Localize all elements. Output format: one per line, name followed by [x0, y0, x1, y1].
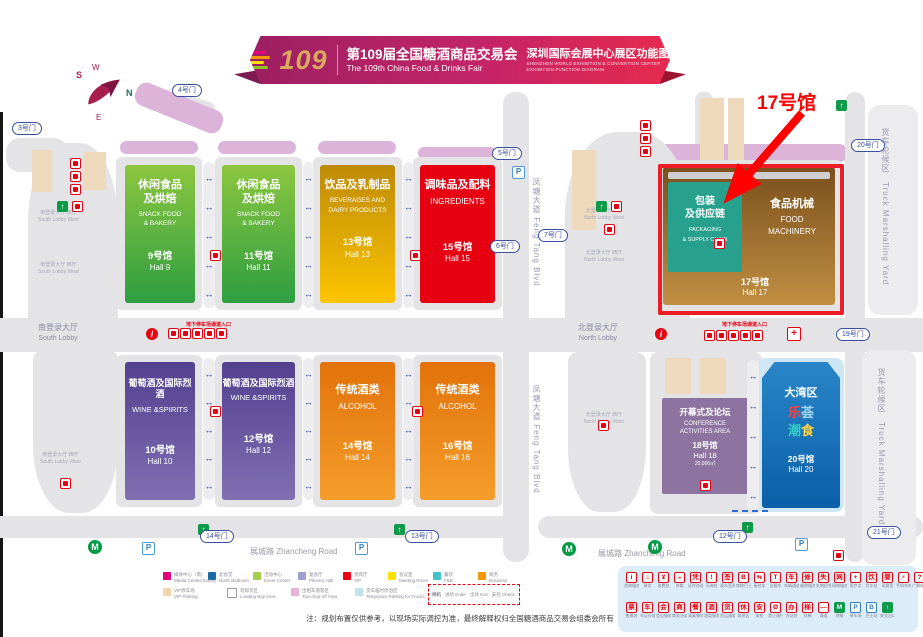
legend-icon-item: Ø禁止通行: [768, 602, 783, 619]
hall-title-en: WINE &SPIRITS: [132, 404, 188, 415]
legend-icon-label: 扶梯: [804, 613, 812, 619]
compass-s: S: [76, 70, 82, 80]
legend-icon-label: 地铁: [836, 613, 844, 619]
legend-icon-item: ♨餐饮: [640, 572, 655, 589]
building-block: [665, 358, 691, 394]
legend-icon-label: 餐饮: [644, 583, 652, 589]
legend-facility-icon: B: [866, 602, 877, 613]
legend-area-label: 货车临时停泊区Temporary Parking for Trucks: [366, 588, 425, 599]
legend-icon-item: 饮饮水处: [864, 572, 879, 589]
facility-icon: [410, 250, 421, 261]
facility-icon: [210, 406, 221, 417]
legend-area-item: 会议室Meeting Room: [388, 572, 428, 583]
legend-icon-label: 维修服务: [800, 583, 815, 589]
zhancheng-road-label: 展城路 Zhancheng Road: [598, 548, 686, 559]
hall-title-cn: 葡萄酒及国际烈酒: [125, 378, 195, 401]
hall-number: 11号馆: [244, 251, 273, 263]
legend-color-chip: [208, 572, 216, 580]
compass-icon: [83, 73, 124, 110]
two-way-arrow-icon: [205, 197, 214, 215]
hall-number: 18号馆: [693, 440, 718, 451]
zone-title-en: MACHINERY: [768, 227, 816, 236]
two-way-arrow-icon: [304, 392, 313, 410]
two-way-arrow-icon: [304, 476, 313, 494]
icon-legend-row-1: i咨询服务♨餐饮¥收费处☕茶歇凭证件办理!问询处签观众签到B穿梭巴士⇆接驳车T出…: [624, 572, 923, 589]
logo-char: 潮: [788, 423, 801, 438]
legend-icon-label: 茶歇: [676, 583, 684, 589]
hall-number: 15号馆: [443, 242, 473, 254]
legend-facility-icon: 车: [642, 602, 653, 613]
legend-facility-icon: 休: [738, 602, 749, 613]
truck-yard-north: [868, 105, 918, 315]
legend-area-label: VIP停车场VIP Parking: [174, 588, 198, 599]
hall-20: 大湾区 乐荟 潮食 20号馆 Hall 20: [762, 362, 840, 508]
south-lobby-west-label: 南登录大厅 西厅South Lobby West: [38, 262, 79, 275]
legend-facility-icon: 梯: [802, 602, 813, 613]
legend-icon-label: 办证处: [786, 613, 798, 619]
two-way-arrow-icon: [304, 364, 313, 382]
facility-icon: [180, 328, 191, 339]
banner-titles: 第109届全国糖酒商品交易会 The 109th China Food & Dr…: [347, 47, 518, 73]
hall-11: 休闲食品 及烘焙 SNACK FOOD& BAKERY 11号馆 Hall 11: [222, 165, 295, 303]
legend-facility-icon: 餐: [690, 602, 701, 613]
legend-icon-item: 凭证件办理: [688, 572, 703, 589]
gatebox-item: 进场 Enter: [445, 592, 466, 598]
fengtang-blvd-label: 凤塘大道 Feng Tang Blvd: [531, 178, 542, 313]
facility-icon: [70, 171, 81, 182]
facility-icon: [716, 330, 727, 341]
taxi-area-shape: [218, 141, 296, 154]
legend-icon-item: ?广播服务: [912, 572, 923, 589]
legend-icon-item: ⚡手机充电: [896, 572, 911, 589]
hall-name-en: Hall 18: [693, 451, 716, 460]
legend-icon-item: M地铁: [832, 602, 847, 619]
zone-title-cn: 食品机械: [755, 195, 829, 211]
hall-17-label: 17号馆 Hall 17: [725, 275, 785, 297]
legend-facility-icon: ♨: [642, 572, 653, 583]
exit-icon: ↑: [57, 201, 68, 212]
facility-icon: [72, 201, 83, 212]
legend-facility-icon: Ø: [770, 602, 781, 613]
legend-facility-icon: T: [770, 572, 781, 583]
hall-title-en: SNACK FOOD& BAKERY: [139, 210, 182, 230]
two-way-arrow-icon: [205, 476, 214, 494]
facility-icon: [640, 133, 651, 144]
compass-e: E: [96, 113, 101, 122]
hall-name-en: Hall 14: [345, 453, 370, 463]
legend-icon-label: 安全出口: [880, 613, 895, 619]
metro-station-icon: M: [648, 540, 662, 554]
legend-icon-label: 手机充电: [896, 583, 911, 589]
disclaimer-note: 注：规划布置仅供参考，以现场实际调控为准，最终解释权归全国糖酒商品交易会组委会所…: [180, 613, 740, 624]
legend-icon-item: i咨询服务: [624, 572, 639, 589]
hall-number: 13号馆: [343, 237, 373, 249]
hall-18: 开幕式及论坛 CONFERENCE ACTIVITIES AREA 18号馆 H…: [662, 398, 748, 494]
building-block: [700, 98, 724, 164]
underground-parking-label: 地下停车场通道入口: [186, 321, 231, 328]
underground-parking-label: 地下停车场通道入口: [722, 321, 767, 328]
two-way-arrow-icon: [304, 420, 313, 438]
legend-facility-icon: ⚡: [898, 572, 909, 583]
legend-icon-item: B巴士站: [864, 602, 879, 619]
two-way-arrow-icon: [749, 456, 758, 474]
gate-7: 7号门: [538, 229, 568, 242]
facility-icon: [704, 330, 715, 341]
hall-title-en: SNACK FOOD& BAKERY: [237, 210, 280, 230]
legend-facility-icon: ¥: [658, 572, 669, 583]
legend-icon-label: 安检: [756, 613, 764, 619]
two-way-arrow-icon: [404, 284, 413, 302]
legend-facility-icon: 婴: [882, 572, 893, 583]
legend-icon-label: 医疗点: [850, 583, 862, 589]
hall-title-en: BEVERAGES ANDDAIRY PRODUCTS: [329, 196, 387, 216]
legend-facility-icon: 车: [786, 572, 797, 583]
legend-facility-icon: —: [818, 602, 829, 613]
hall-name-en: Hall 15: [445, 254, 470, 264]
two-way-arrow-icon: [205, 448, 214, 466]
building-block: [32, 150, 52, 192]
banner-title-en: The 109th China Food & Drinks Fair: [347, 63, 518, 73]
banner-subtitles: 深圳国际会展中心展区功能图 SHENZHEN WORLD EXHIBITION …: [527, 48, 670, 72]
compass-w: W: [92, 63, 100, 72]
hall-13: 饮品及乳制品 BEVERAGES ANDDAIRY PRODUCTS 13号馆 …: [320, 165, 395, 303]
corridor-arrows: [203, 162, 215, 308]
two-way-arrow-icon: [304, 284, 313, 302]
north-lobby-label: 北登录大厅North Lobby: [578, 323, 618, 344]
legend-icon-label: 问询处: [706, 583, 718, 589]
facility-icon: [611, 201, 622, 212]
zone-title-en: PACKAGING: [689, 227, 721, 233]
two-way-arrow-icon: [304, 226, 313, 244]
facility-icon: [604, 224, 615, 235]
legend-icon-item: 网网络服务: [832, 572, 847, 589]
legend-facility-icon: ?: [914, 572, 923, 583]
legend-facility-icon: ⇆: [754, 572, 765, 583]
banner-subtitle-en: EXHIBITION FUNCTION DIAGRAM: [527, 67, 670, 73]
logo-char: 荟: [801, 405, 814, 420]
legend-area-label: 会议室Meeting Room: [399, 572, 428, 583]
taxi-area-shape: [120, 141, 198, 154]
legend-icon-item: —通道: [816, 602, 831, 619]
south-lobby-label: 南登录大厅South Lobby: [38, 323, 78, 344]
zhancheng-road-label: 展城路 Zhancheng Road: [250, 546, 338, 557]
hall-number: 20号馆: [788, 453, 814, 465]
facility-icon: [640, 120, 651, 131]
legend-facility-icon: 饮: [866, 572, 877, 583]
legend-icon-item: 办办证处: [784, 602, 799, 619]
legend-icon-label: 失物招领: [816, 583, 831, 589]
legend-facility-icon: M: [834, 602, 845, 613]
legend-area-label: 贵宾厅VIP: [354, 572, 368, 583]
legend-facility-icon: 商: [674, 602, 685, 613]
legend-icon-label: 禁止通行: [768, 613, 783, 619]
gate-20: 20号门: [851, 139, 885, 152]
legend-area-item: 北会堂North Ballroom: [208, 572, 249, 583]
legend-color-chip: [388, 572, 396, 580]
two-way-arrow-icon: [304, 197, 313, 215]
corridor-arrows: [303, 162, 314, 308]
legend-icon-item: 签观众签到: [720, 572, 735, 589]
facility-icon: [60, 478, 71, 489]
legend-icon-item: 婴母婴室: [880, 572, 895, 589]
legend-facility-icon: +: [850, 572, 861, 583]
legend-icon-item: ⇆接驳车: [752, 572, 767, 589]
legend-facility-icon: 网: [834, 572, 845, 583]
image-edge: [0, 112, 3, 637]
facility-icon: [752, 330, 763, 341]
facility-icon: [168, 328, 179, 339]
legend-area-label: 出租车落客区Taxi drop-off Area: [302, 588, 337, 599]
legend-color-chip: [478, 572, 486, 580]
two-way-arrow-icon: [205, 420, 214, 438]
facility-icon: [216, 328, 227, 339]
legend-area-label: 北会堂North Ballroom: [219, 572, 249, 583]
hall-title-en: CONFERENCE: [684, 421, 726, 427]
legend-icon-label: 穿梭巴士: [736, 583, 751, 589]
gate-3: 3号门: [12, 122, 42, 135]
logo-char: 乐: [788, 405, 801, 420]
facility-icon: [728, 330, 739, 341]
gate-4: 4号门: [172, 84, 202, 97]
legend-facility-icon: 安: [754, 602, 765, 613]
legend-icon-item: !问询处: [704, 572, 719, 589]
north-lobby-west-label: 北登录大厅 西厅North Lobby West: [584, 250, 624, 263]
facility-icon: [833, 550, 844, 561]
hall-title-en: WINE &SPIRITS: [231, 392, 287, 403]
two-way-arrow-icon: [205, 226, 214, 244]
gate-5: 5号门: [492, 147, 522, 160]
legend-area-item: 货车临时停泊区Temporary Parking for Trucks: [355, 588, 425, 599]
two-way-arrow-icon: [205, 168, 214, 186]
banner-title-cn: 第109届全国糖酒商品交易会: [347, 47, 518, 63]
legend-area-label: 活动中心Event Center: [264, 572, 290, 583]
legend-area-item: 活动中心Event Center: [253, 572, 290, 583]
legend-icon-label: 停车场: [850, 613, 862, 619]
legend-area-item: 出租车落客区Taxi drop-off Area: [291, 588, 337, 599]
legend-area-item: VIP停车场VIP Parking: [163, 588, 198, 599]
legend-color-chip: [355, 588, 363, 596]
gatebox-item: 出场 Exit: [470, 592, 488, 598]
legend-icon-label: 观众签到: [720, 583, 735, 589]
logo-char: 食: [801, 423, 814, 438]
hall-area: 20,000㎡: [695, 460, 715, 467]
two-way-arrow-icon: [404, 226, 413, 244]
legend-color-chip: [343, 572, 351, 580]
hall-16: 传统酒类 ALCOHOL 16号馆 Hall 16: [420, 362, 495, 500]
corridor-arrows: [747, 360, 759, 510]
two-way-arrow-icon: [749, 486, 758, 504]
legend-icon-item: T出租车: [768, 572, 783, 589]
legend-icon-item: 安安检: [752, 602, 767, 619]
hall-number: 12号馆: [244, 434, 274, 446]
central-road: [0, 318, 923, 352]
hall-title-cn: 大湾区: [785, 384, 818, 400]
legend-icon-item: P停车场: [848, 602, 863, 619]
hall-number: 10号馆: [145, 445, 175, 457]
legend-color-chip: [163, 588, 171, 596]
corridor-arrows: [303, 358, 314, 500]
hall-10: 葡萄酒及国际烈酒 WINE &SPIRITS 10号馆 Hall 10: [125, 362, 195, 500]
legend-area-item: 宴会厅Plenary Hall: [298, 572, 333, 583]
legend-icon-label: 母婴室: [882, 583, 894, 589]
dashed-path: [732, 510, 768, 512]
zone-title-cn: 及供应链: [685, 209, 725, 220]
two-way-arrow-icon: [304, 168, 313, 186]
legend-area-label: 商务Business: [489, 572, 507, 583]
legend-icon-label: 证件办理: [688, 583, 703, 589]
gate-12: 12号门: [713, 530, 747, 543]
legend-icon-item: +医疗点: [848, 572, 863, 589]
gatebox-item: 安检 Check: [492, 592, 515, 598]
building-block: [700, 358, 726, 394]
legend-facility-icon: 修: [802, 572, 813, 583]
parking-icon: P: [355, 542, 368, 555]
legend-facility-icon: 酒: [706, 602, 717, 613]
metro-station-icon: M: [562, 542, 576, 556]
event-banner: 109 第109届全国糖酒商品交易会 The 109th China Food …: [250, 36, 670, 84]
building-block: [728, 98, 744, 164]
facility-icon: [740, 330, 751, 341]
legend-icon-label: 广播服务: [912, 583, 923, 589]
legend-facility-icon: 签: [722, 572, 733, 583]
legend-area-item: 餐饮F&B: [433, 572, 453, 583]
legend-facility-icon: 票: [626, 602, 637, 613]
gate-13: 13号门: [405, 530, 439, 543]
exhibition-map: { "banner": { "logo_number": "109", "tit…: [0, 0, 923, 637]
hall-name-en: Hall 13: [345, 250, 370, 260]
hall-17-packaging-zone: 包装 及供应链 PACKAGING & SUPPLY CHAIN: [668, 182, 742, 272]
corridor-arrows: [403, 162, 414, 308]
legend-facility-icon: 货: [722, 602, 733, 613]
facility-icon: [598, 420, 609, 431]
legend-facility-icon: B: [738, 572, 749, 583]
hall-number: 16号馆: [443, 441, 473, 453]
gate-machine-legend: 闸机进场 Enter出场 Exit安检 Check: [428, 584, 520, 605]
south-lobby-building-lower: [33, 350, 118, 513]
legend-facility-icon: 办: [786, 602, 797, 613]
first-aid-icon: +: [787, 327, 801, 341]
two-way-arrow-icon: [404, 420, 413, 438]
hall-17: 包装 及供应链 PACKAGING & SUPPLY CHAIN 食品机械 FO…: [663, 167, 835, 305]
legend-icon-label: 饮水处: [866, 583, 878, 589]
legend-area-label: 装卸货区Loading Bay Area: [240, 588, 276, 599]
two-way-arrow-icon: [404, 197, 413, 215]
hall-title-cn: 饮品及乳制品: [325, 179, 391, 193]
facility-icon: [192, 328, 203, 339]
south-lobby-west-label: 南登录大厅 西厅South Lobby West: [40, 452, 81, 465]
hall-title-cn: 葡萄酒及国际烈酒: [222, 378, 294, 389]
hall-name-en: Hall 17: [725, 288, 785, 297]
two-way-arrow-icon: [749, 396, 758, 414]
zone-title-cn: 包装: [695, 196, 715, 207]
hall-name-en: Hall 10: [148, 457, 173, 467]
legend-icon-item: 梯扶梯: [800, 602, 815, 619]
taxi-area-shape: [318, 141, 396, 154]
legend-color-chip: [291, 588, 299, 596]
hall-title-cn: 传统酒类: [436, 384, 480, 398]
corridor-arrows: [203, 358, 215, 500]
hall-title-cn: 休闲食品 及烘焙: [138, 179, 182, 207]
hall-name-en: Hall 12: [246, 446, 271, 456]
compass-n: N: [126, 88, 133, 98]
parking-icon: P: [142, 542, 155, 555]
hall-number: 17号馆: [725, 275, 785, 288]
hall-title-en: INGREDIENTS: [430, 196, 485, 208]
facility-icon: [210, 250, 221, 261]
facility-icon: [640, 146, 651, 157]
divider: [337, 45, 338, 75]
information-icon: i: [655, 328, 667, 340]
hall-name-en: Hall 20: [789, 465, 814, 474]
legend-facility-icon: 凭: [690, 572, 701, 583]
hall-14: 传统酒类 ALCOHOL 14号馆 Hall 14: [320, 362, 395, 500]
two-way-arrow-icon: [304, 448, 313, 466]
legend-facility-icon: !: [706, 572, 717, 583]
parking-icon: P: [795, 538, 808, 551]
legend-icon-item: 失失物招领: [816, 572, 831, 589]
legend-area-label: 宴会厅Plenary Hall: [309, 572, 333, 583]
legend-facility-icon: 会: [658, 602, 669, 613]
information-icon: i: [146, 328, 158, 340]
legend-area-item: 装卸货区Loading Bay Area: [227, 588, 276, 599]
facility-icon: [412, 406, 423, 417]
exit-icon: ↑: [836, 100, 847, 111]
two-way-arrow-icon: [749, 426, 758, 444]
legend-icon-label: 接驳车: [754, 583, 766, 589]
legend-icon-label: 巴士站: [866, 613, 878, 619]
fengtang-blvd-label: 凤塘大道 Feng Tang Blvd: [531, 385, 542, 505]
north-lobby-building-lower: [568, 352, 646, 512]
legend-icon-label: 车辆通道: [784, 583, 799, 589]
legend-icon-label: 通道: [820, 613, 828, 619]
legend-color-chip: [227, 588, 237, 598]
two-way-arrow-icon: [749, 366, 758, 384]
facility-icon: [714, 238, 725, 249]
two-way-arrow-icon: [404, 476, 413, 494]
loading-dock-strip: [668, 172, 830, 179]
two-way-arrow-icon: [205, 364, 214, 382]
legend-area-item: 商务Business: [478, 572, 507, 583]
banner-subtitle-cn: 深圳国际会展中心展区功能图: [527, 48, 670, 61]
zone-title-en: FOOD: [780, 215, 803, 224]
hall-name-en: Hall 9: [150, 263, 170, 273]
legend-icon-item: B穿梭巴士: [736, 572, 751, 589]
gate-14: 14号门: [200, 530, 234, 543]
gate-6: 6号门: [490, 240, 520, 253]
legend-icon-item: ☕茶歇: [672, 572, 687, 589]
hall-17-machinery-zone: 食品机械 FOOD MACHINERY: [755, 195, 829, 238]
metro-station-icon: M: [88, 540, 102, 554]
legend-facility-icon: ↑: [882, 602, 893, 613]
legend-color-chip: [253, 572, 261, 580]
hall-9: 休闲食品 及烘焙 SNACK FOOD& BAKERY 9号馆 Hall 9: [125, 165, 195, 303]
two-way-arrow-icon: [404, 168, 413, 186]
facility-icon: [204, 328, 215, 339]
parking-icon: P: [512, 166, 525, 179]
legend-facility-icon: 失: [818, 572, 829, 583]
exit-icon: ↑: [394, 524, 405, 535]
legend-color-chip: [298, 572, 306, 580]
two-way-arrow-icon: [404, 448, 413, 466]
exit-icon: ↑: [596, 201, 607, 212]
conference-icon: [700, 480, 711, 491]
gatebox-title: 闸机: [432, 592, 441, 598]
legend-icon-item: ¥收费处: [656, 572, 671, 589]
hall-title-en: ALCOHOL: [438, 401, 476, 413]
legend-icon-label: 咨询服务: [624, 583, 639, 589]
facility-icon: [70, 158, 81, 169]
legend-icon-item: 车车辆通道: [784, 572, 799, 589]
